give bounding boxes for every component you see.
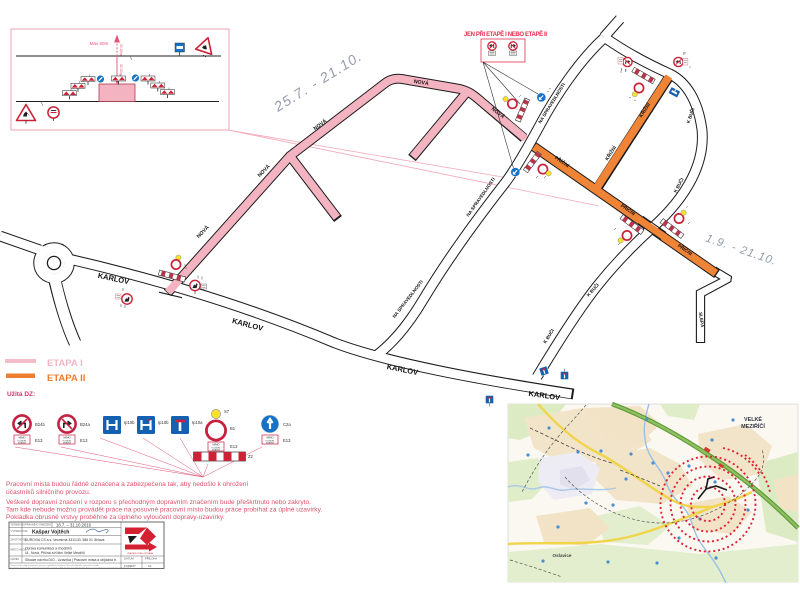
svg-text:JEN PŘI ETAPĚ I NEBO ETAPĚ II: JEN PŘI ETAPĚ I NEBO ETAPĚ II — [464, 30, 547, 38]
svg-text:E13: E13 — [35, 438, 43, 443]
svg-text:ZNAČENÍ VČAS OSTRAVA: ZNAČENÍ VČAS OSTRAVA — [127, 552, 153, 555]
svg-text:MEZIŘÍČÍ: MEZIŘÍČÍ — [741, 422, 765, 430]
svg-text:DATUM: DATUM — [124, 557, 134, 561]
svg-text:PŘÍLOHA: PŘÍLOHA — [145, 556, 157, 561]
svg-text:18.7. – 31.10.2016: 18.7. – 31.10.2016 — [56, 522, 92, 527]
svg-text:C2a: C2a — [283, 422, 291, 427]
svg-text:Oslavice: Oslavice — [553, 553, 572, 558]
svg-text:Ip10b: Ip10b — [124, 420, 135, 425]
svg-text:STAVBY: STAVBY — [212, 449, 221, 452]
svg-text:Max 50m: Max 50m — [90, 41, 109, 46]
svg-text:Veškeré dopravní značení v roz: Veškeré dopravní značení v rozporu s pře… — [6, 499, 311, 506]
svg-text:STAVBY: STAVBY — [18, 442, 27, 445]
svg-text:B24b: B24b — [35, 422, 45, 427]
svg-text:VYPRACOVAL: VYPRACOVAL — [11, 529, 29, 533]
svg-text:B24a: B24a — [80, 422, 90, 427]
svg-text:účastníků silničního provozu.: účastníků silničního provozu. — [6, 488, 91, 496]
svg-text:MIMO: MIMO — [212, 443, 219, 447]
svg-text:30-50m: 30-50m — [119, 64, 123, 76]
svg-text:E13: E13 — [80, 438, 88, 443]
svg-text:ETAPA II: ETAPA II — [47, 373, 85, 384]
svg-text:STAVBY: STAVBY — [266, 442, 275, 445]
svg-text:VELKÉ: VELKÉ — [744, 415, 762, 423]
svg-text:Tam kde nebude možno provádět: Tam kde nebude možno provádět práce na p… — [6, 507, 322, 514]
svg-text:NÁZEV: NÁZEV — [11, 557, 20, 561]
svg-text:TERMÍN DOPRAVNÍHO OMEZENÍ: TERMÍN DOPRAVNÍHO OMEZENÍ — [11, 523, 52, 527]
svg-text:Pracovní místa budou řádně ozn: Pracovní místa budou řádně označena a za… — [6, 481, 248, 488]
svg-text:STAVBY: STAVBY — [63, 442, 72, 445]
svg-text:MIMO: MIMO — [63, 436, 70, 440]
svg-text:30-50m: 30-50m — [119, 44, 123, 56]
svg-text:EUROVIA CS a.s. Vesmírná 331/1: EUROVIA CS a.s. Vesmírná 331/133, 586 01… — [25, 538, 104, 542]
svg-text:K návrhu dopravního značení by: K návrhu dopravního značení byl použit p… — [11, 566, 132, 569]
svg-text:Ul., Nová, Příčná a Křižní Ve: Ul., Nová, Příčná a Křižní Velké Meziříč… — [25, 551, 85, 555]
svg-text:B1: B1 — [230, 426, 236, 431]
svg-text:Pokládka obrusné vrstvy proběh: Pokládka obrusné vrstvy proběhne za úpln… — [6, 514, 225, 521]
svg-text:MIMO: MIMO — [18, 436, 25, 440]
svg-text:A4: A4 — [148, 564, 152, 568]
svg-text:S7: S7 — [224, 409, 230, 414]
svg-text:Situace návrhu DIO - Uzavírka: Situace návrhu DIO - Uzavírka | Pracovní… — [25, 558, 117, 562]
svg-text:E13: E13 — [230, 444, 238, 449]
svg-text:Z2: Z2 — [248, 454, 254, 459]
svg-text:Kašpar Vojtěch: Kašpar Vojtěch — [32, 530, 69, 536]
svg-text:ETAPA I: ETAPA I — [47, 358, 83, 369]
svg-text:Ip10a: Ip10a — [192, 420, 203, 425]
svg-text:E13: E13 — [283, 438, 291, 443]
svg-text:Ip10b: Ip10b — [158, 420, 169, 425]
svg-text:MIMO: MIMO — [266, 436, 273, 440]
svg-text:Užitá DZ:: Užitá DZ: — [7, 391, 35, 398]
